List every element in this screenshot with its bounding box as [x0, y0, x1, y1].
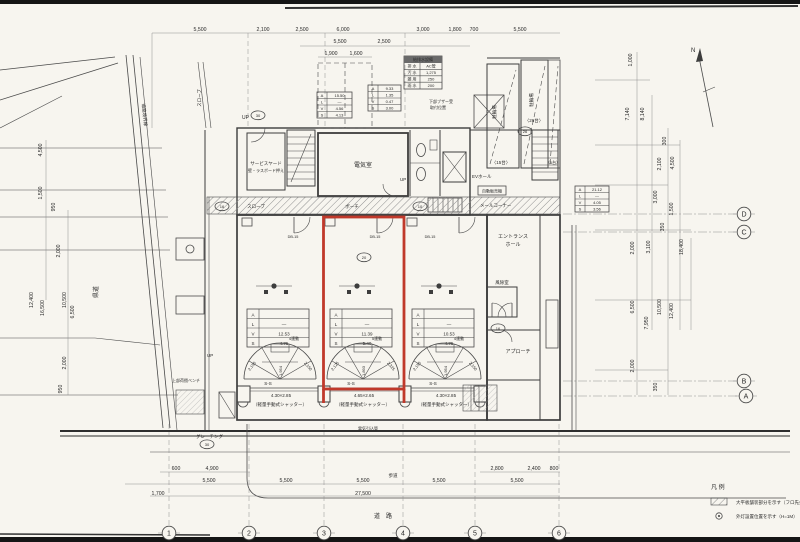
windbreak-room — [487, 287, 517, 317]
dims-right-label: 350 — [660, 223, 666, 232]
fan-dim: 1,954 — [443, 365, 448, 376]
aux-table-cell: 200 — [428, 83, 435, 88]
bench-note: 上部荷捌ベンチ — [172, 377, 200, 383]
circle-numbers-label: 26 — [523, 129, 528, 134]
roads: 県道 道路境界線 道 路 グレーチング — [0, 55, 790, 520]
exterior-steps — [463, 385, 497, 411]
legend-title: 凡 例 — [711, 483, 725, 491]
table-cell: — — [282, 322, 287, 327]
unit-middle: A L — V 11.39 S 5.40 2,125 2,325 1,893 5… — [325, 217, 399, 408]
aux-table-area1: A15.50L—V4.56S4.13 — [317, 92, 352, 118]
aux-table-cell: 4.13 — [336, 112, 345, 117]
table-cell: A — [251, 313, 254, 318]
legend-hatch-swatch — [711, 498, 727, 505]
table-cell: S — [416, 341, 419, 346]
floor-plan-sheet: 県道 道路境界線 道 路 グレーチング — [0, 0, 800, 542]
stairs-left — [287, 130, 315, 186]
aux-table-title: 給排水設備 — [413, 56, 433, 62]
aux-table-cell: V — [372, 99, 375, 104]
table-cell: L — [335, 322, 338, 327]
aux-table-cell: 汚 水 — [407, 69, 416, 75]
section-mark: S-S — [347, 381, 355, 386]
dims-top-label: 6,000 — [337, 27, 350, 33]
dims-right-label: 12,400 — [669, 303, 675, 319]
door-codes-label: DB-15 — [370, 235, 381, 239]
dims-right-label: 350 — [653, 383, 659, 392]
dims-left-label: 2,000 — [62, 356, 68, 369]
dims-top-label: 1,900 — [325, 51, 338, 57]
annotations: 5,5002,1002,5006,0003,0001,8007005,5005,… — [29, 27, 685, 497]
dims-top-label: 700 — [470, 27, 479, 33]
aux-table-cell: AC管 — [426, 63, 436, 69]
machine-room — [487, 330, 540, 380]
bike-a-count: 〈15台〉 — [492, 159, 511, 166]
floor-plan-drawing: 県道 道路境界線 道 路 グレーチング — [0, 0, 800, 542]
dims-top-label: 5,500 — [334, 39, 347, 45]
dims-right-label: 1,500 — [669, 202, 675, 215]
dims-bottom-label: 5,500 — [203, 478, 216, 484]
bike-b-count: 〈26台〉 — [525, 117, 544, 124]
aux-table-cell: L — [372, 92, 375, 97]
aux-table-cell: A — [579, 187, 582, 192]
dims-top-label: 5,500 — [514, 27, 527, 33]
aux-table-area2: A9.33L1.35V0.47S3.00 — [368, 85, 401, 111]
grid-bubbles: 123456DCBA — [158, 207, 757, 540]
dims-right-label: 7,140 — [625, 107, 631, 120]
dims-top-label: 3,000 — [417, 27, 430, 33]
toilet-fixture — [417, 144, 426, 157]
elevator — [443, 152, 466, 182]
table-cell: L — [417, 322, 420, 327]
bicycle-parking — [487, 58, 560, 168]
aux-table-cell: 3.00 — [386, 105, 395, 110]
table-cell: A — [416, 313, 419, 318]
stairs-right — [532, 130, 558, 180]
table-cell: — — [447, 322, 452, 327]
grid-bubble-A: A — [735, 389, 757, 403]
vending-label: 自動販売機 — [482, 188, 502, 194]
fan-note: 4連動 — [289, 335, 299, 341]
notes-label: 電気引込管 — [358, 425, 378, 431]
aux-table-cell: S — [321, 112, 324, 117]
up-label-2: UP — [207, 353, 213, 358]
grid-bubble-label: D — [741, 211, 746, 218]
dims-bottom-label: 27,500 — [355, 491, 371, 497]
dims-top-label: 5,500 — [194, 27, 207, 33]
bike-a-label: 駐輪場 — [491, 105, 498, 119]
door-codes-label: DB-15 — [425, 235, 436, 239]
aux-table-cell: 0.47 — [386, 99, 395, 104]
circle-numbers-label: 20 — [362, 255, 367, 260]
entrance-hall-label: エントランス — [498, 234, 528, 240]
legend: 凡 例 大平板舗装部分を示す（フロ先共） 外灯設置位置を示す（H=1M） — [711, 483, 800, 520]
dims-right-label: 7,950 — [644, 316, 650, 329]
grid-bubble-label: 4 — [401, 530, 405, 537]
aux-tables: 給排水設備排 水AC管汚 水1,275雑 用250雨 水200A15.50L—V… — [317, 56, 609, 212]
service-yard-label: サービスヤード — [250, 160, 282, 167]
legend-item-1: 大平板舗装部分を示す（フロ先共） — [736, 499, 800, 506]
road-boundary-label: 道路境界線 — [140, 103, 149, 127]
table-cell: S — [251, 341, 254, 346]
windbreak-label: 風除室 — [495, 279, 509, 286]
grid-bubble-label: 1 — [167, 530, 171, 537]
dims-right-label: 3,100 — [646, 240, 652, 253]
dims-left-label: 2,000 — [56, 244, 62, 257]
north-label: N — [691, 48, 695, 54]
dims-right-label: 1,000 — [628, 53, 634, 66]
approach-label: アプローチ — [505, 349, 530, 355]
aux-table-cell: L — [579, 193, 582, 198]
circle-numbers-label: 16 — [496, 326, 501, 331]
grid-bubble-C: C — [733, 225, 755, 239]
table-cell: L — [252, 322, 255, 327]
aux-table-cell: 4.56 — [336, 106, 345, 111]
prefectural-road-label: 県道 — [92, 286, 100, 298]
table-cell: — — [365, 322, 370, 327]
circle-numbers-label: 30 — [205, 442, 210, 447]
dims-right-label: 300 — [662, 137, 668, 146]
dims-top-label: 2,500 — [378, 39, 391, 45]
dims-left-label: 12,400 — [29, 292, 35, 308]
dims-top-label: 1,800 — [449, 27, 462, 33]
service-yard-note: 壁・ラスボード押え — [248, 167, 284, 173]
bike-b-label: 駐輪場 — [528, 93, 535, 107]
notes-label: 下部ブザー受 — [429, 98, 453, 104]
aux-table-cell: — — [595, 193, 599, 198]
grating-label: グレーチング — [196, 433, 223, 440]
up-label-3: UP — [400, 177, 406, 182]
shutter-note: （軽量手動式シャッター） — [418, 401, 472, 408]
dims-left-label: 1,500 — [38, 186, 44, 199]
dims-right-label: 2,100 — [657, 157, 663, 170]
fan-dim: 1,893 — [361, 365, 366, 376]
grid-bubble-label: 2 — [247, 530, 251, 537]
up-label-1: UP — [242, 115, 250, 121]
dims-bottom-label: 5,500 — [280, 478, 293, 484]
table-cell: V — [334, 332, 337, 337]
aux-table-cell: — — [338, 99, 342, 104]
dims-left-label: 950 — [58, 385, 64, 394]
section-mark: S-S — [429, 381, 437, 386]
aux-table-cell: V — [579, 200, 582, 205]
dims-bottom-label: 600 — [172, 466, 181, 472]
circle-numbers-label: 10 — [418, 204, 423, 209]
unit-left: A L — V 12.53 S 4.75 2,150 2,150 1,954 4… — [242, 217, 316, 408]
dims-left-label: 10,500 — [62, 292, 68, 308]
dims-bottom-label: 5,500 — [357, 478, 370, 484]
dims-top-label: 1,600 — [350, 51, 363, 57]
aux-table-cell: 排 水 — [407, 63, 416, 69]
electrical-room-label: 電気室 — [354, 161, 372, 169]
dims-bottom-label: 2,400 — [528, 466, 541, 472]
dims-left-label: 4,500 — [38, 143, 44, 156]
west-strip — [176, 130, 235, 430]
aux-table-cell: L — [321, 99, 324, 104]
aux-table-cell: 15.50 — [334, 93, 345, 98]
wc-area — [410, 130, 440, 196]
notes-label: 取付位置 — [430, 104, 446, 110]
entrance-hall-label2: ホール — [505, 242, 520, 248]
aux-table-cell: S — [372, 105, 375, 110]
shutter-note: （軽量手動式シャッター） — [336, 401, 390, 408]
unit-size: 4.30×2.85 — [436, 393, 457, 398]
dims-top-label: 2,100 — [257, 27, 270, 33]
dims-right-label: 4,500 — [670, 156, 676, 169]
dims-right-label: 2,000 — [630, 241, 636, 254]
aux-table-cell: 21.12 — [592, 187, 603, 192]
dims-right-label: 8,140 — [640, 107, 646, 120]
aux-table-cell: 1,275 — [426, 70, 437, 75]
aux-table-cell: 雑 用 — [407, 76, 416, 82]
grid-bubble-label: 6 — [557, 530, 561, 537]
dims-right-label: 2,000 — [630, 359, 636, 372]
dims-right-label: 18,400 — [679, 239, 685, 255]
circle-numbers-label: 16 — [220, 204, 225, 209]
dims-bottom-label: 1,700 — [152, 491, 165, 497]
grid-bubble-label: 5 — [473, 530, 477, 537]
dims-right-label: 10,500 — [657, 299, 663, 315]
aux-table-cell: V — [321, 106, 324, 111]
grid-bubble-B: B — [733, 374, 755, 388]
dims-top-label: 2,500 — [296, 27, 309, 33]
aux-table-cell: S — [579, 206, 582, 211]
grid-bubble-label: 3 — [322, 530, 326, 537]
aux-table-cell: 3.56 — [593, 206, 602, 211]
circle-numbers-label: 30 — [256, 113, 261, 118]
north-arrow: N — [691, 48, 715, 127]
dims-left-label: 6,500 — [70, 305, 76, 318]
dims-right-label: 3,000 — [653, 190, 659, 203]
dims-bottom-label: 5,500 — [511, 478, 524, 484]
fan-dim: 1,954 — [278, 365, 283, 376]
aux-table-drain: 給排水設備排 水AC管汚 水1,275雑 用250雨 水200 — [404, 56, 442, 89]
dims-bottom-label: 800 — [550, 466, 559, 472]
grid-bubble-label: C — [741, 229, 746, 236]
dims-left-label: 950 — [51, 203, 57, 212]
section-mark: S-S — [264, 381, 272, 386]
fan-note: 4連動 — [454, 335, 464, 341]
aux-table-cell: A — [372, 86, 375, 91]
unit-size: 4.65×2.65 — [354, 393, 375, 398]
road-label: 道 路 — [374, 512, 392, 520]
dims-bottom-label: 4,900 — [206, 466, 219, 472]
ev-hall-label: EVホール — [472, 174, 492, 179]
porch-label: ポーチ — [345, 203, 359, 209]
east-boundary — [572, 225, 576, 430]
dims-bottom-label: 2,800 — [491, 466, 504, 472]
aux-table-cell: 雨 水 — [407, 82, 416, 88]
aux-table-cell: 9.33 — [386, 86, 395, 91]
toilet-fixture — [417, 168, 426, 181]
notes-label: 歩道 — [389, 472, 398, 479]
table-cell: A — [334, 313, 337, 318]
unit-right: A L — V 10.53 S 4.75 2,150 2,150 1,954 4… — [407, 217, 481, 408]
table-cell: V — [416, 332, 419, 337]
dims-right-label: 6,500 — [630, 300, 636, 313]
table-cell: V — [251, 332, 254, 337]
legend-item-2: 外灯設置位置を示す（H=1M） — [736, 513, 798, 520]
aux-table-cell: 4.05 — [593, 200, 602, 205]
unit-size: 4.30×2.85 — [271, 393, 292, 398]
door-codes-label: DB-15 — [288, 235, 299, 239]
aux-table-approach: A21.12L—V4.05S3.56 — [575, 186, 609, 212]
dims-bottom-label: 5,500 — [433, 478, 446, 484]
fan-note: 5連動 — [372, 335, 382, 341]
bike-c-count: 〈6台〉 — [546, 159, 560, 165]
shutter-note: （軽量手動式シャッター） — [253, 401, 307, 408]
aux-table-cell: A — [321, 93, 324, 98]
dims-left-label: 16,500 — [40, 300, 46, 316]
aux-table-cell: 1.35 — [386, 92, 395, 97]
aux-table-cell: 250 — [428, 77, 435, 82]
grid-bubble-label: B — [742, 378, 747, 385]
table-cell: S — [334, 341, 337, 346]
grid-bubble-D: D — [733, 207, 755, 221]
grid-bubble-label: A — [744, 393, 749, 400]
